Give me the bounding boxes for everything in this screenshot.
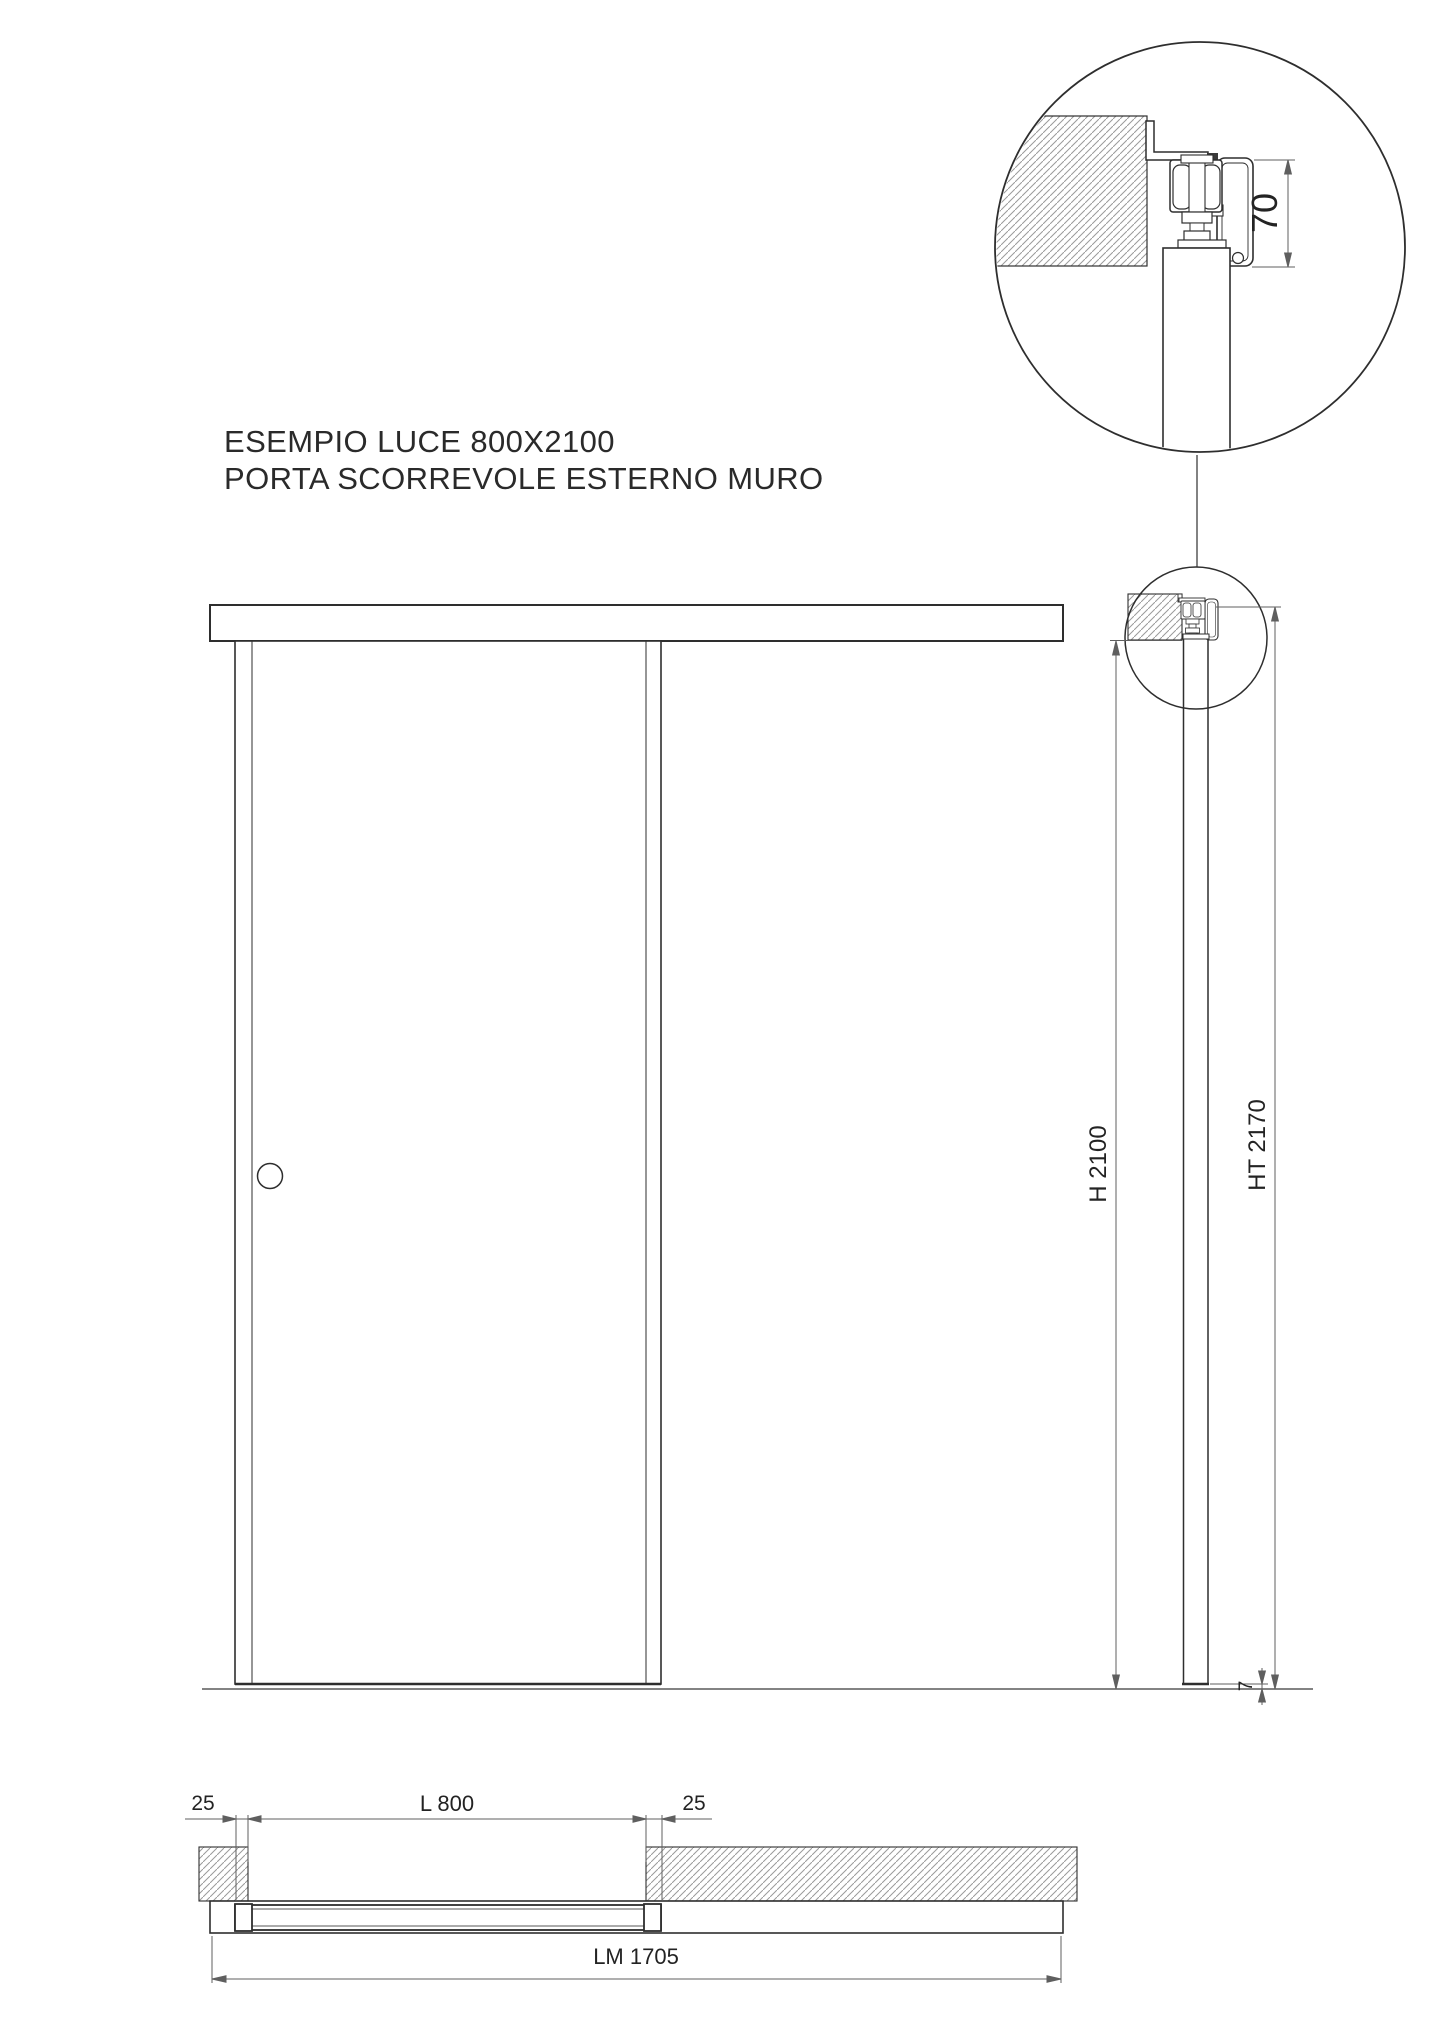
detail-carriage-topplate xyxy=(1181,155,1213,163)
detail-wall-hatch xyxy=(990,116,1147,266)
detail-angle-bracket xyxy=(1146,121,1208,160)
plan-wall-left xyxy=(199,1847,248,1901)
door-handle xyxy=(258,1164,283,1189)
detail-door-top-plate xyxy=(1178,240,1226,248)
dim-label-70: 70 xyxy=(1244,193,1286,233)
dim-label-25-left: 25 xyxy=(191,1792,214,1816)
elevation-track-header xyxy=(210,605,1063,641)
section-door-slab xyxy=(1184,637,1209,1684)
elevation-door-panel xyxy=(235,641,661,1684)
technical-drawing-page: ESEMPIO LUCE 800X2100 PORTA SCORREVOLE E… xyxy=(0,0,1445,2043)
elevation-view xyxy=(202,605,1313,1689)
drawing-title-line2: PORTA SCORREVOLE ESTERNO MURO xyxy=(224,461,824,497)
dim-label-ht2170: HT 2170 xyxy=(1244,1099,1272,1191)
detail-track-curl xyxy=(1233,253,1244,264)
plan-view xyxy=(199,1847,1077,1933)
detail-carriage-center xyxy=(1189,161,1205,212)
drawing-canvas xyxy=(0,0,1445,2043)
detail-callout-big xyxy=(990,42,1405,458)
detail-door-slab xyxy=(1163,248,1230,458)
dim-label-l800: L 800 xyxy=(420,1791,474,1817)
dim-label-h2100: H 2100 xyxy=(1085,1125,1113,1202)
section-track-hardware xyxy=(1178,594,1218,640)
dim-label-25-right: 25 xyxy=(682,1792,705,1816)
plan-door-endcap-left xyxy=(235,1904,252,1931)
dim-label-lm1705: LM 1705 xyxy=(593,1944,679,1970)
plan-door-endcap-right xyxy=(644,1904,661,1931)
dim-label-floor-gap: 7 xyxy=(1236,1681,1258,1692)
section-view xyxy=(1125,455,1267,1684)
drawing-title-line1: ESEMPIO LUCE 800X2100 xyxy=(224,424,615,460)
plan-wall-right xyxy=(646,1847,1077,1901)
